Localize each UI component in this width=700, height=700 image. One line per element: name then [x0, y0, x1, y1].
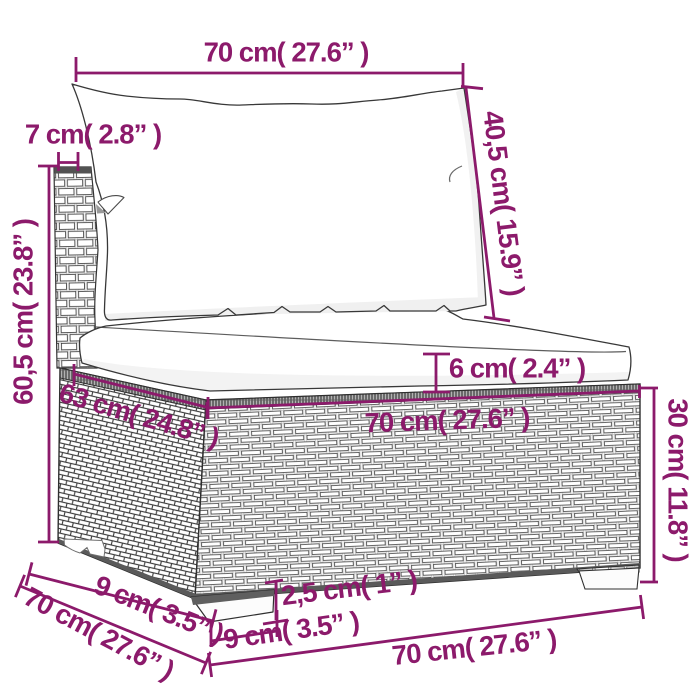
svg-text:60,5 cm( 23.8” ): 60,5 cm( 23.8” ) — [8, 219, 39, 405]
svg-text:70 cm( 27.6” ): 70 cm( 27.6” ) — [364, 402, 530, 439]
svg-text:6 cm( 2.4” ): 6 cm( 2.4” ) — [449, 353, 585, 384]
svg-text:30 cm( 11.8” ): 30 cm( 11.8” ) — [663, 398, 694, 561]
svg-text:70 cm( 27.6” ): 70 cm( 27.6” ) — [204, 37, 369, 68]
svg-text:7 cm( 2.8” ): 7 cm( 2.8” ) — [25, 119, 161, 150]
